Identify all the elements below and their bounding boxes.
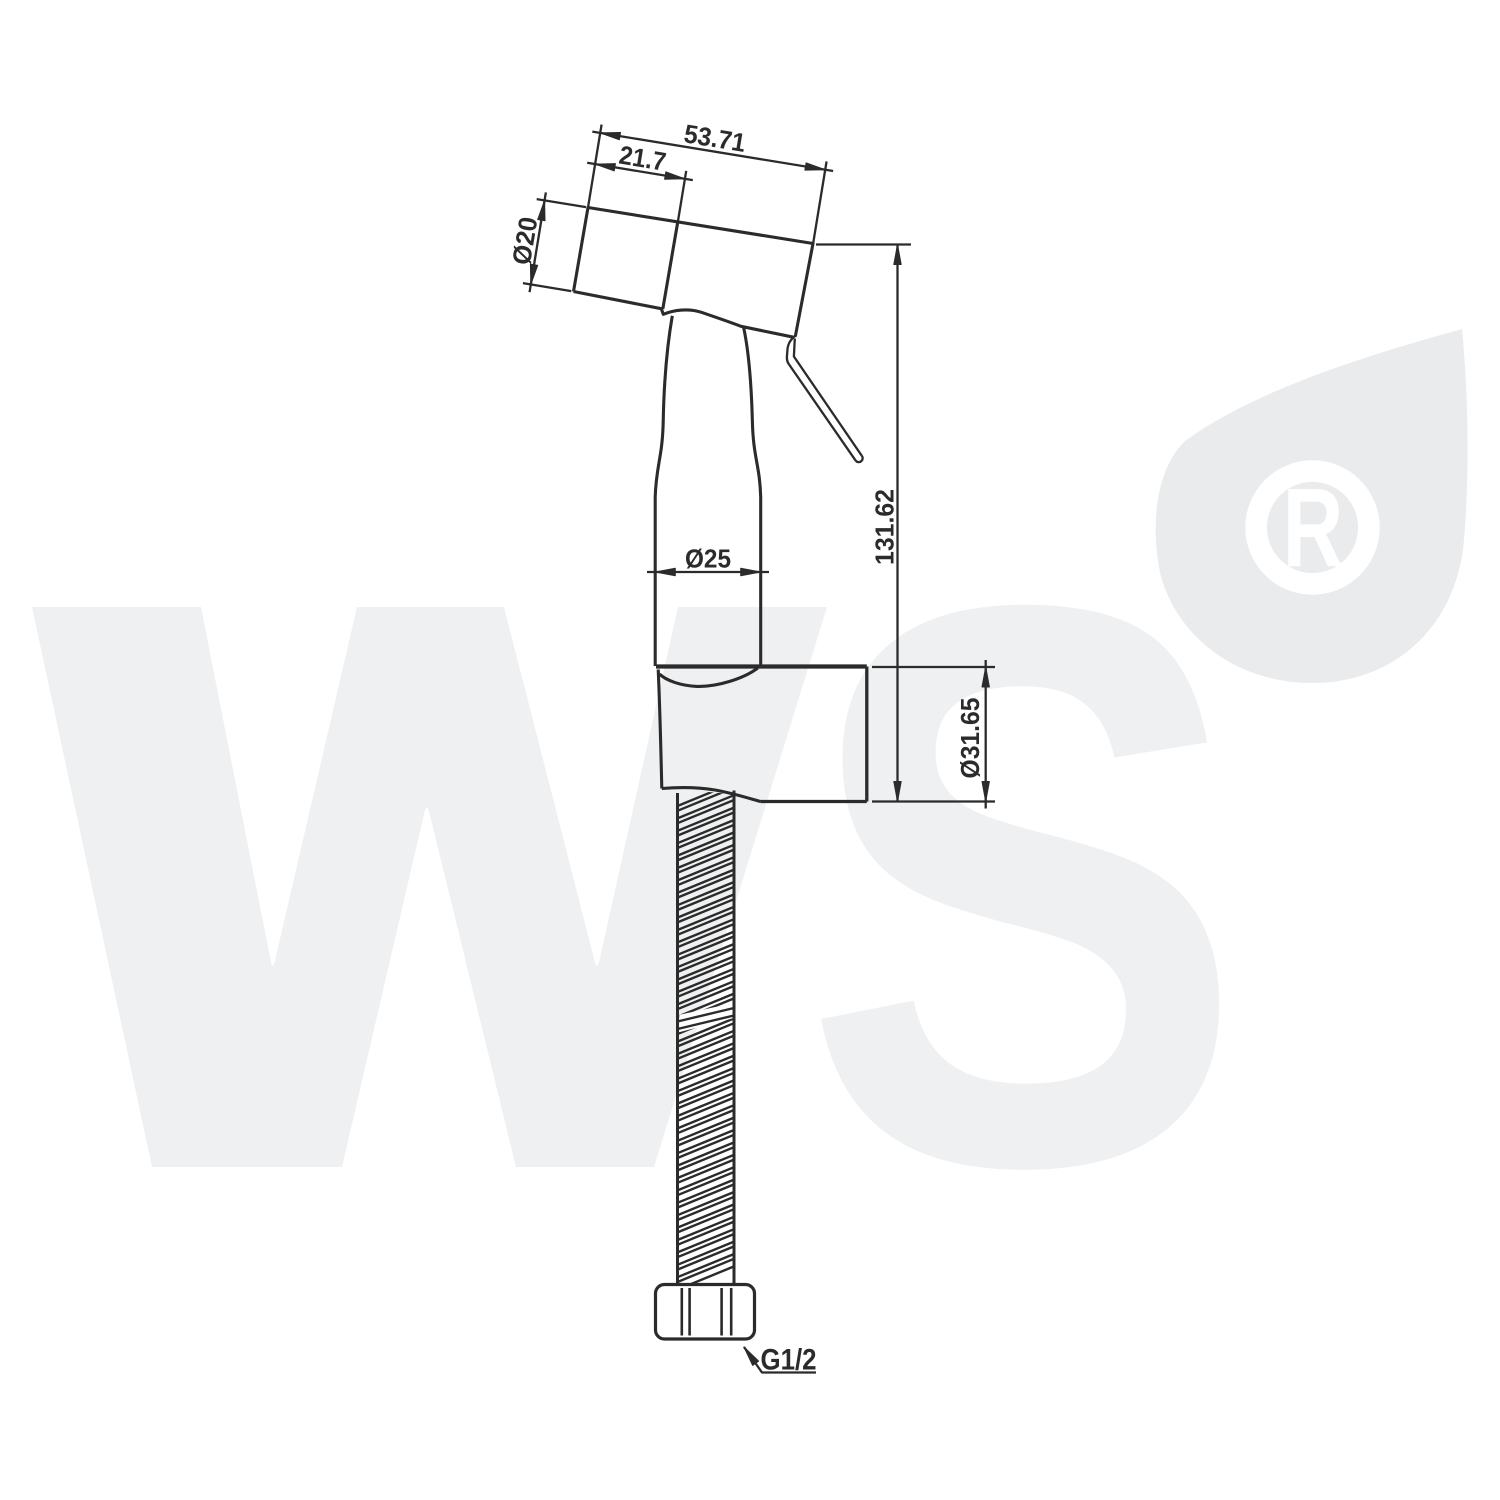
svg-text:G1/2: G1/2 — [761, 1344, 817, 1377]
svg-text:Ø25: Ø25 — [685, 544, 731, 574]
svg-text:R: R — [1283, 465, 1344, 591]
svg-text:131.62: 131.62 — [870, 489, 900, 565]
svg-text:Ø31.65: Ø31.65 — [955, 698, 985, 779]
